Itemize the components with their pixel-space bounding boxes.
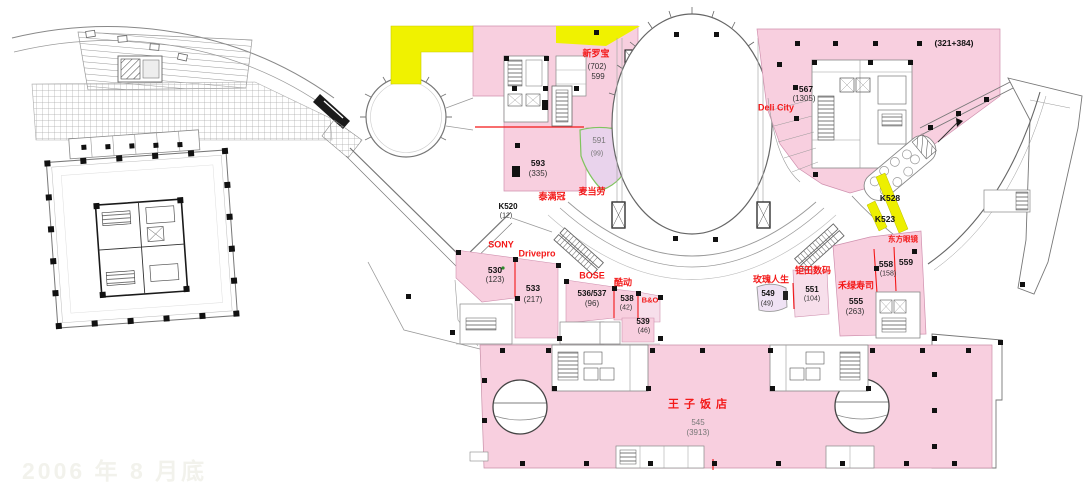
shop-name-kudong: 酷动 (614, 279, 632, 288)
unit-536-537: 536/537 (578, 290, 607, 298)
area-555: (263) (846, 308, 865, 316)
unit-559: 559 (899, 258, 913, 267)
unit-k523: K523 (875, 215, 895, 224)
area-558: (158) (880, 271, 896, 278)
unit-princehotel: 545 (691, 419, 704, 427)
shop-name-helvshousi: 禾绿寿司 (838, 282, 874, 291)
shop-name-drivepro: Drivepro (518, 250, 555, 259)
date-watermark: 2006 年 8 月底 (22, 460, 207, 483)
area-princehotel: (3913) (686, 429, 709, 437)
area-533: (217) (524, 296, 543, 304)
unit-555: 555 (849, 297, 863, 306)
office-tower (42, 128, 240, 329)
shop-name-delicity: Deli City (758, 104, 794, 113)
unit-551: 551 (805, 286, 818, 294)
unit-k528: K528 (880, 194, 900, 203)
unit-539: 539 (636, 318, 649, 326)
floor-plan-page: 新罗宝 (702) 599 593 (335) 591 (99) 泰满冠 麦当劳… (0, 0, 1090, 500)
area-551: (104) (804, 296, 820, 303)
unit-533: 533 (526, 284, 540, 293)
shop-name-princehotel: 王子饭店 (668, 400, 732, 411)
unit-530: 530 (488, 266, 502, 275)
area-xinluobao: 599 (591, 73, 604, 81)
area-591: (99) (591, 151, 603, 158)
shop-name-bo: B&O (642, 296, 659, 304)
area-530: (123) (486, 276, 505, 284)
shop-name-dongfangyanjing: 东方眼镜 (888, 235, 918, 243)
shop-name-bose: BOSE (579, 272, 605, 281)
shop-name-meiguirensheng: 玫瑰人生 (753, 276, 789, 285)
unit-558: 558 (879, 260, 893, 269)
shop-name-sony: SONY (488, 241, 514, 250)
area-549: (49) (761, 301, 773, 308)
unit-538: 538 (620, 295, 633, 303)
shop-name-jutianshuma: 钜田数码 (795, 267, 831, 276)
unit-567: 567 (799, 85, 813, 94)
unit-593: 593 (531, 159, 545, 168)
area-593: (335) (529, 170, 548, 178)
unit-549: 549 (761, 290, 774, 298)
unit-591: 591 (592, 137, 605, 145)
shop-name-taimanguan: 泰满冠 (538, 193, 565, 202)
area-567: (1305) (792, 95, 815, 103)
area-536-537: (96) (585, 300, 599, 308)
area-539: (46) (638, 328, 650, 335)
unit-k520: K520 (498, 203, 517, 211)
area-k520: (12) (500, 213, 512, 220)
shop-name-xinluobao: 新罗宝 (582, 50, 609, 59)
area-538: (42) (620, 305, 632, 312)
unit-xinluobao: (702) (588, 63, 607, 71)
area-band: (321+384) (935, 39, 974, 48)
shop-name-mcdonalds: 麦当劳 (578, 188, 605, 197)
